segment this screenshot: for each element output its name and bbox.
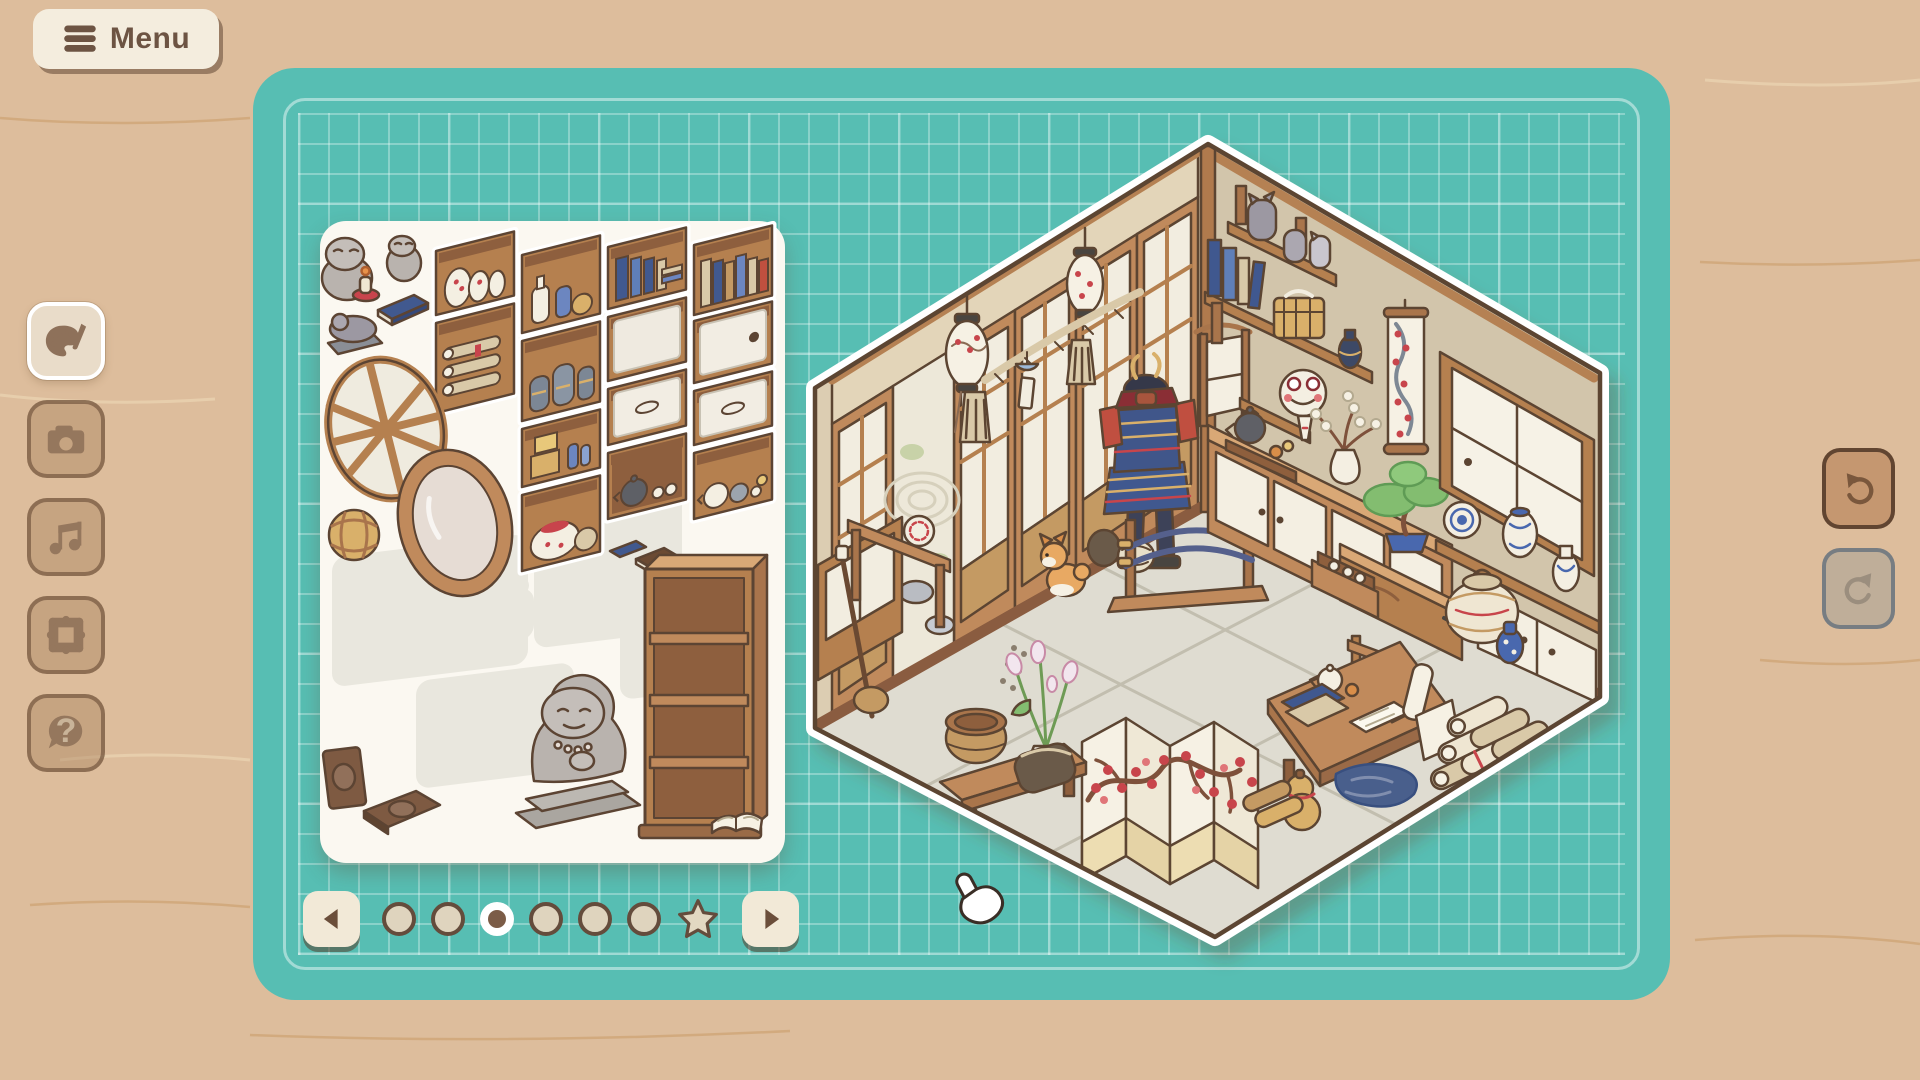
- page-dot[interactable]: [431, 902, 465, 936]
- page-dot[interactable]: [382, 902, 416, 936]
- page-dot[interactable]: [627, 902, 661, 936]
- hamburger-icon: [62, 24, 98, 54]
- music-note-icon: [43, 514, 89, 560]
- tray-item-scroll-shelf[interactable]: [436, 304, 514, 413]
- sticker-tray[interactable]: [320, 221, 785, 863]
- sidebar-button-frame[interactable]: [27, 596, 105, 674]
- question-glyph: ?: [31, 696, 101, 766]
- star-page-indicator[interactable]: [676, 897, 720, 941]
- next-page-button[interactable]: [742, 891, 799, 947]
- sidebar-button-photo[interactable]: [27, 400, 105, 478]
- sidebar-button-music[interactable]: [27, 498, 105, 576]
- tray-item-tea-set-shelf[interactable]: [694, 434, 772, 519]
- tray-item-teapot-shelf[interactable]: [608, 434, 686, 519]
- page-dot-active[interactable]: [480, 902, 514, 936]
- picture-frame-icon: [43, 612, 89, 658]
- tray-item-rattan-ball[interactable]: [329, 510, 379, 560]
- menu-label: Menu: [110, 22, 190, 56]
- tray-item-frog-candle-figurine[interactable]: [322, 238, 379, 301]
- tray-item-reclining-frog-statue[interactable]: [328, 314, 382, 354]
- tray-item-hot-pot-shelf[interactable]: [522, 476, 600, 571]
- sidebar-button-help[interactable]: ?: [27, 694, 105, 772]
- page-dot[interactable]: [578, 902, 612, 936]
- redo-arrow-icon: [1838, 568, 1880, 610]
- tray-item-stone-jar-shelf[interactable]: [522, 322, 600, 421]
- sidebar: ?: [27, 302, 105, 772]
- page-navigation: [303, 888, 799, 950]
- prev-page-button[interactable]: [303, 891, 360, 947]
- tray-item-small-frog-figurine[interactable]: [387, 236, 421, 281]
- tray-item-sake-bottle-shelf[interactable]: [522, 236, 600, 333]
- sidebar-button-decorate[interactable]: [27, 302, 105, 380]
- undo-button[interactable]: [1822, 448, 1895, 529]
- tray-item-blue-book[interactable]: [378, 295, 428, 325]
- redo-button[interactable]: [1822, 548, 1895, 629]
- page-dots: [382, 897, 720, 941]
- tray-item-brown-album[interactable]: [323, 747, 367, 809]
- tray-item-brown-notebook[interactable]: [364, 791, 440, 834]
- undo-arrow-icon: [1838, 468, 1880, 510]
- tray-item-bookshelf[interactable]: [639, 555, 767, 838]
- camera-icon: [43, 416, 89, 462]
- menu-button[interactable]: Menu: [33, 9, 219, 69]
- left-triangle-icon: [317, 904, 347, 934]
- palette-brush-icon: [43, 318, 89, 364]
- right-triangle-icon: [756, 904, 786, 934]
- page-dot[interactable]: [529, 902, 563, 936]
